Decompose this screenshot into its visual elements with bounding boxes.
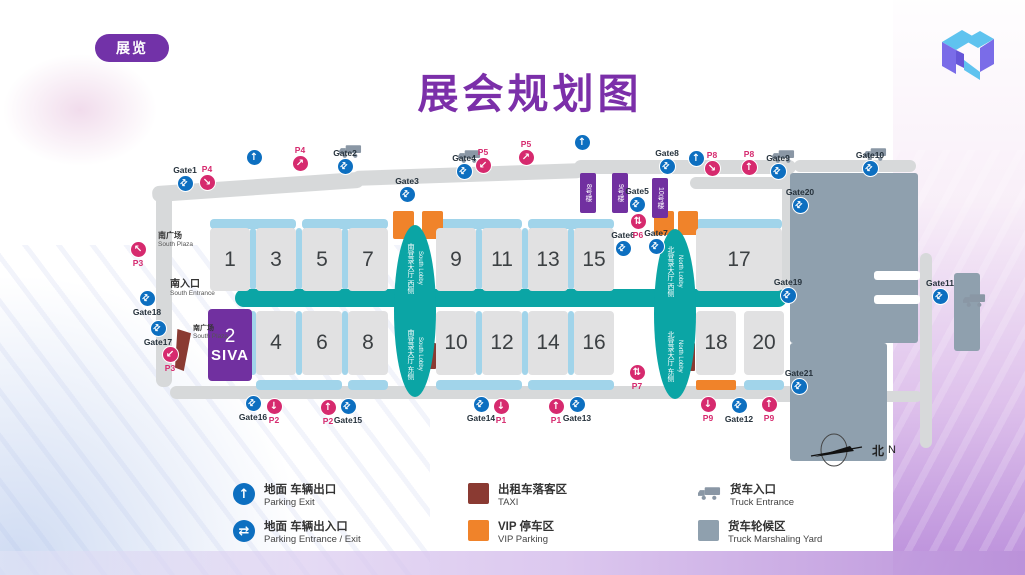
building-label: 8号楼	[584, 184, 592, 202]
parking-marker-p3: ↙P3	[146, 346, 194, 373]
gate-marker-gate19: Gate19⇄	[764, 277, 812, 304]
parking-marker-p4-label: P4	[295, 145, 305, 155]
gate-marker-gate18: ⇄Gate18	[123, 290, 171, 317]
hall-6: 6	[302, 311, 342, 375]
hall-20: 20	[744, 311, 784, 375]
slide: 展览 展会规划图 南登录大厅 西侧South Lobby南登录大厅 东侧Sout…	[0, 0, 1025, 575]
parking-exit-arrow: ↑	[672, 150, 720, 167]
gate-marker-gate21-icon: ⇄	[791, 378, 808, 395]
parking-marker-p4: P4↘	[183, 164, 231, 191]
hall-number: 14	[536, 331, 559, 355]
parking-entrance-exit-icon: ⇄	[233, 520, 255, 542]
south-plaza-label: 南广场South Plaza	[158, 232, 193, 248]
gate-marker-gate11-label: Gate11	[926, 278, 954, 288]
parking-marker-p5-icon: ↙	[475, 157, 492, 174]
south-plaza-label-zh: 南广场	[158, 232, 193, 241]
legend-label-zh: 出租车落客区	[498, 483, 567, 497]
compass: 北 N	[810, 432, 896, 468]
gate-marker-gate3-label: Gate3	[395, 176, 419, 186]
parking-marker-p5-label: P5	[521, 139, 531, 149]
parking-marker-p1: ↓P1	[477, 398, 525, 425]
siva-logo-icon	[936, 24, 1000, 86]
compass-north-en: N	[888, 444, 896, 456]
parking-marker-p1-icon: ↓	[493, 398, 510, 415]
compass-north-zh: 北	[872, 442, 884, 459]
south-lobby-label-zh: 南登录大厅 西侧	[406, 243, 414, 294]
parking-marker-p5-icon: ↗	[518, 149, 535, 166]
south-plaza-label-2-en: South Plaza	[193, 333, 228, 340]
gate-marker-gate3-icon: ⇄	[399, 186, 416, 203]
north-arrow-icon	[810, 432, 868, 468]
south-plaza-label-2: 南广场South Plaza	[193, 325, 228, 340]
parking-exit-arrow-icon: ↑	[574, 134, 591, 151]
hall-11: 11	[482, 228, 522, 291]
parking-marker-p4-label: P4	[202, 164, 212, 174]
legend-label-en: VIP Parking	[498, 534, 554, 545]
hall-number: 8	[362, 331, 374, 355]
parking-marker-p2: ↓P2	[250, 398, 298, 425]
gate-marker-gate2-icon: ⇄	[337, 158, 354, 175]
south-lobby-label-en: South Lobby	[416, 337, 424, 371]
hall-sub-label: SIVA	[211, 347, 249, 364]
legend-label-zh: 货车入口	[730, 483, 794, 497]
hall-5: 5	[302, 228, 342, 291]
hall-number: 17	[727, 248, 750, 272]
south-lobby-label-zh: 南登录大厅 东侧	[406, 329, 414, 380]
hall-number: 13	[536, 248, 559, 272]
parking-marker-p7: ⇅P7	[613, 364, 661, 391]
south-entrance-label: 南入口South Entrance	[170, 279, 215, 297]
hall-9: 9	[436, 228, 476, 291]
gate-marker-gate5: Gate5⇄	[613, 186, 661, 213]
parking-marker-p7-label: P7	[632, 381, 642, 391]
gate-marker-gate19-label: Gate19	[774, 277, 802, 287]
legend-item-exit-0: ↑地面 车辆出口Parking Exit	[233, 483, 336, 508]
south-plaza-label-2-zh: 南广场	[193, 325, 228, 333]
parking-marker-p9-icon: ↑	[761, 396, 778, 413]
gate-marker-gate2: Gate2⇄	[321, 148, 369, 175]
north-lobby-label-zh: 北登录大厅 东侧	[666, 331, 674, 382]
hall-number: 5	[316, 248, 328, 272]
hall-number: 4	[270, 331, 282, 355]
building-8号楼: 8号楼	[580, 173, 596, 213]
hall-number: 12	[490, 331, 513, 355]
legend-text: 货车轮候区Truck Marshaling Yard	[728, 520, 822, 545]
parking-marker-p1-label: P1	[496, 415, 506, 425]
legend-label-zh: 地面 车辆出入口	[264, 520, 361, 534]
legend-text: 货车入口Truck Entrance	[730, 483, 794, 508]
legend-label-zh: 货车轮候区	[728, 520, 822, 534]
parking-exit-arrow: ↑	[558, 134, 606, 151]
parking-marker-p3: ↖P3	[114, 241, 162, 268]
legend-item-swatch-3: VIP 停车区VIP Parking	[468, 520, 554, 545]
truck-icon	[698, 483, 721, 506]
parking-marker-p5: P5↗	[502, 139, 550, 166]
hall-number: 9	[450, 248, 462, 272]
hall-16: 16	[574, 311, 614, 375]
parking-marker-p5-label: P5	[478, 147, 488, 157]
parking-marker-p2-icon: ↑	[320, 399, 337, 416]
parking-marker-p5: P5↙	[459, 147, 507, 174]
gate-marker-gate18-label: Gate18	[133, 307, 161, 317]
hall-8: 8	[348, 311, 388, 375]
parking-exit-icon: ↑	[233, 483, 255, 505]
gate-marker-gate3: Gate3⇄	[383, 176, 431, 203]
legend-color-swatch	[468, 520, 489, 541]
parking-marker-p4-icon: ↗	[292, 155, 309, 172]
legend-label-en: Parking Exit	[264, 497, 336, 508]
legend-label-en: Truck Entrance	[730, 497, 794, 508]
legend-text: 出租车落客区TAXI	[498, 483, 567, 508]
legend-label-en: TAXI	[498, 497, 567, 508]
parking-marker-p6: ⇅P6	[614, 213, 662, 240]
gate-marker-gate19-icon: ⇄	[780, 287, 797, 304]
legend-color-swatch	[698, 520, 719, 541]
parking-marker-p3-icon: ↙	[162, 346, 179, 363]
corridor-bar	[256, 380, 342, 390]
legend-label-zh: 地面 车辆出口	[264, 483, 336, 497]
gate-marker-gate21-label: Gate21	[785, 368, 813, 378]
gate-marker-gate5-icon: ⇄	[629, 196, 646, 213]
yard-notch	[874, 295, 920, 304]
parking-marker-p1-label: P1	[551, 415, 561, 425]
parking-marker-p8: P8↑	[725, 149, 773, 176]
hall-4: 4	[256, 311, 296, 375]
hall-7: 7	[348, 228, 388, 291]
hall-12: 12	[482, 311, 522, 375]
main-corridor	[235, 289, 787, 307]
hall-number: 10	[444, 331, 467, 355]
south-entrance-label-zh: 南入口	[170, 279, 215, 290]
gate-marker-gate7-icon: ⇄	[648, 238, 665, 255]
parking-marker-p2-label: P2	[269, 415, 279, 425]
hall-2: 2SIVA	[208, 309, 252, 381]
gate-marker-gate5-label: Gate5	[625, 186, 649, 196]
north-lobby-label-en: North Lobby	[676, 255, 684, 288]
gate-marker-gate18-icon: ⇄	[139, 290, 156, 307]
parking-marker-p4: P4↗	[276, 145, 324, 172]
vip-parking-zone	[696, 380, 736, 390]
gate-marker-gate10-label: Gate10	[856, 150, 884, 160]
parking-marker-p2-icon: ↓	[266, 398, 283, 415]
parking-exit-arrow: ↑	[230, 149, 278, 166]
gate-marker-gate20-icon: ⇄	[792, 197, 809, 214]
gate-marker-gate11: Gate11⇄	[916, 278, 964, 305]
gate-marker-gate2-label: Gate2	[333, 148, 357, 158]
hall-number: 1	[224, 248, 236, 272]
legend-item-truck-4: 货车入口Truck Entrance	[698, 483, 794, 508]
gate-marker-gate21: Gate21⇄	[775, 368, 823, 395]
gate-marker-gate6-icon: ⇄	[615, 240, 632, 257]
south-lobby-half: 南登录大厅 东侧South Lobby	[394, 311, 436, 397]
hall-13: 13	[528, 228, 568, 291]
parking-marker-p8-icon: ↑	[741, 159, 758, 176]
section-badge: 展览	[95, 34, 169, 62]
legend-text: VIP 停车区VIP Parking	[498, 520, 554, 545]
south-lobby-label-en: South Lobby	[416, 251, 424, 285]
parking-marker-p6-label: P6	[633, 230, 643, 240]
legend-label-zh: VIP 停车区	[498, 520, 554, 534]
parking-marker-p9: ↑P9	[745, 396, 793, 423]
hall-10: 10	[436, 311, 476, 375]
parking-marker-p8-label: P8	[744, 149, 754, 159]
parking-marker-p7-icon: ⇅	[629, 364, 646, 381]
parking-marker-p9-label: P9	[764, 413, 774, 423]
hall-number: 20	[752, 331, 775, 355]
truck-icon	[963, 293, 986, 313]
gate-marker-gate20-label: Gate20	[786, 187, 814, 197]
legend-text: 地面 车辆出口Parking Exit	[264, 483, 336, 508]
parking-exit-arrow-icon: ↑	[688, 150, 705, 167]
hall-number: 16	[582, 331, 605, 355]
parking-marker-p3-icon: ↖	[130, 241, 147, 258]
legend-item-swatch-5: 货车轮候区Truck Marshaling Yard	[698, 520, 822, 545]
page-title: 展会规划图	[35, 60, 1025, 120]
hall-number: 3	[270, 248, 282, 272]
parking-marker-p1: ↑P1	[532, 398, 580, 425]
parking-marker-p9-label: P9	[703, 413, 713, 423]
legend-label-en: Truck Marshaling Yard	[728, 534, 822, 545]
hall-number: 6	[316, 331, 328, 355]
parking-marker-p1-icon: ↑	[548, 398, 565, 415]
gate-marker-gate10-icon: ⇄	[862, 160, 879, 177]
hall-14: 14	[528, 311, 568, 375]
parking-marker-p9: ↓P9	[684, 396, 732, 423]
south-lobby: 南登录大厅 西侧South Lobby南登录大厅 东侧South Lobby	[394, 225, 436, 397]
gate-marker-gate17-icon: ⇄	[150, 320, 167, 337]
south-entrance-label-en: South Entrance	[170, 290, 215, 297]
yard-notch	[874, 271, 920, 280]
north-lobby-label-en: North Lobby	[676, 340, 684, 373]
legend-label-en: Parking Entrance / Exit	[264, 534, 361, 545]
hall-number: 18	[704, 331, 727, 355]
gate-marker-gate10: Gate10⇄	[846, 150, 894, 177]
hall-1: 1	[210, 228, 250, 291]
gate-marker-gate17: ⇄Gate17	[134, 320, 182, 347]
hall-number: 11	[491, 248, 513, 272]
parking-marker-p3-label: P3	[133, 258, 143, 268]
gate-marker-gate11-icon: ⇄	[932, 288, 949, 305]
legend-text: 地面 车辆出入口Parking Entrance / Exit	[264, 520, 361, 545]
gate-marker-gate20: Gate20⇄	[776, 187, 824, 214]
parking-exit-arrow-icon: ↑	[246, 149, 263, 166]
south-plaza-label-en: South Plaza	[158, 241, 193, 248]
south-lobby-half: 南登录大厅 西侧South Lobby	[394, 225, 436, 311]
hall-3: 3	[256, 228, 296, 291]
corridor-bar	[436, 380, 522, 390]
legend-item-inout-1: ⇄地面 车辆出入口Parking Entrance / Exit	[233, 520, 361, 545]
parking-marker-p4-icon: ↘	[199, 174, 216, 191]
hall-18: 18	[696, 311, 736, 375]
legend-item-swatch-2: 出租车落客区TAXI	[468, 483, 567, 508]
parking-marker-p2-label: P2	[323, 416, 333, 426]
corridor-bar	[528, 380, 614, 390]
corridor-bar	[348, 380, 388, 390]
parking-marker-p3-label: P3	[165, 363, 175, 373]
parking-marker-p2: ↑P2	[304, 399, 352, 426]
legend-color-swatch	[468, 483, 489, 504]
parking-marker-p6-icon: ⇅	[630, 213, 647, 230]
hall-number: 7	[362, 248, 374, 272]
parking-marker-p9-icon: ↓	[700, 396, 717, 413]
